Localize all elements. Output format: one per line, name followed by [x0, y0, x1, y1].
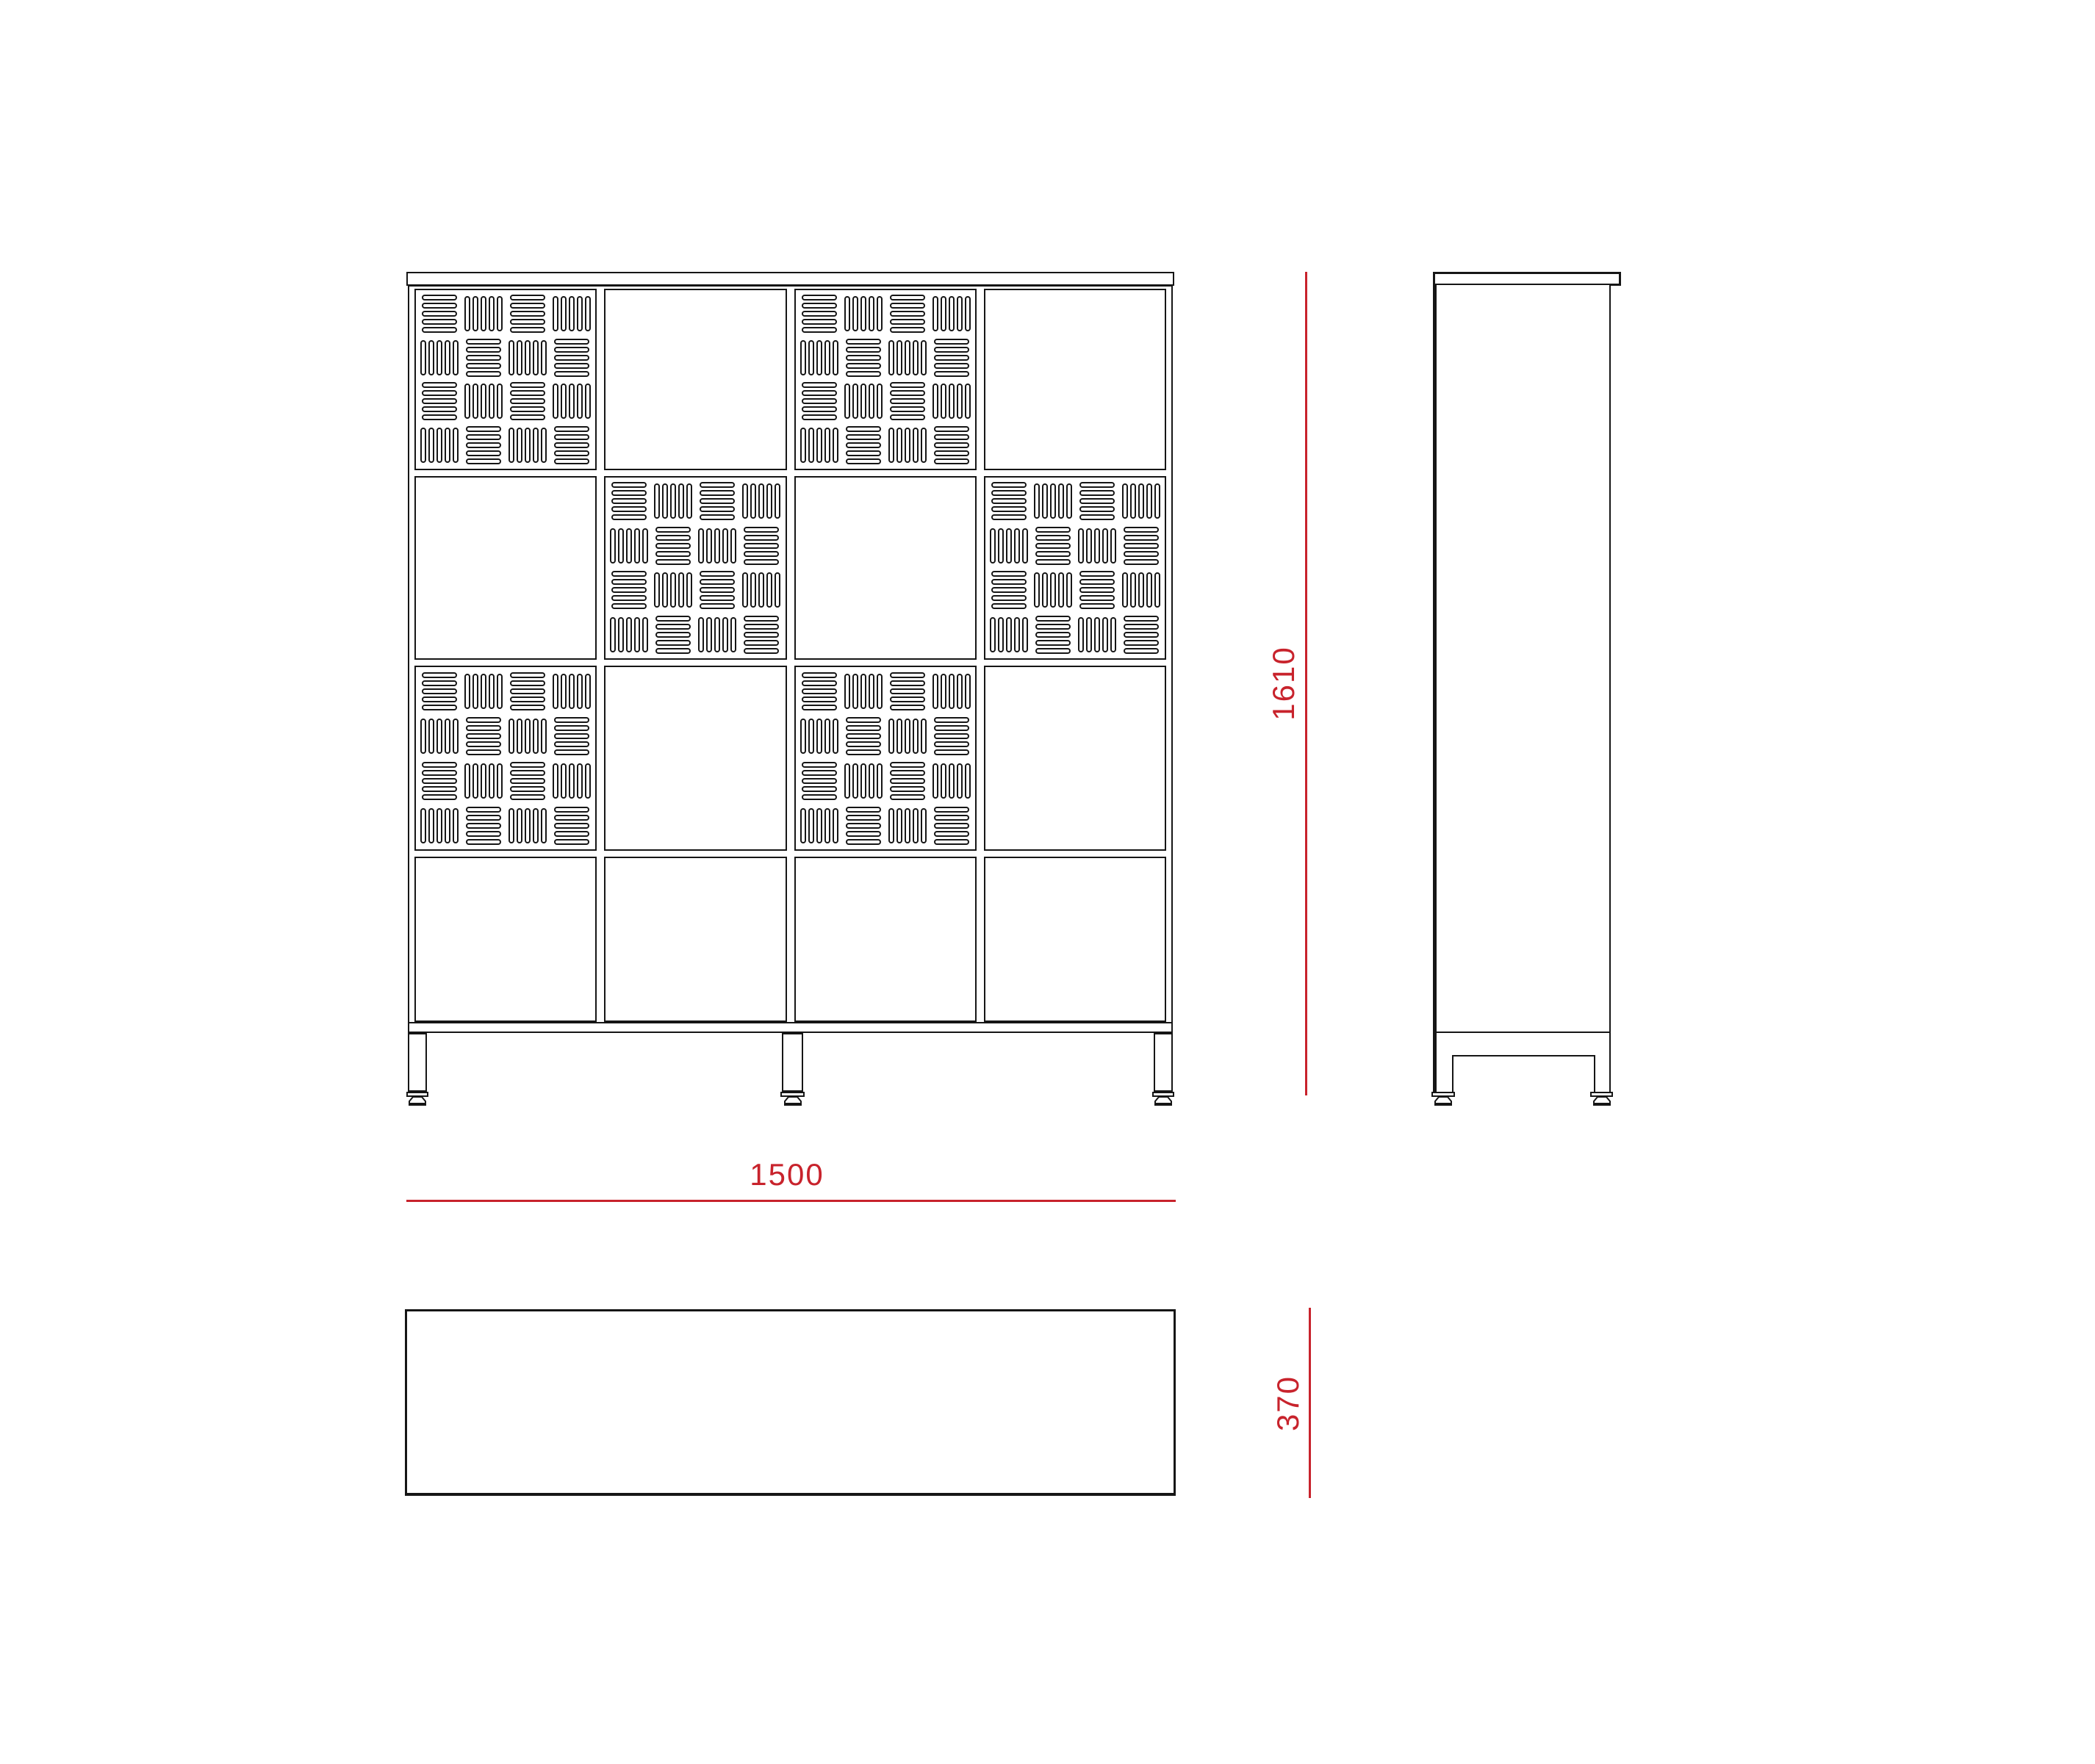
slat-group-horizontal — [417, 669, 461, 713]
slat-group-vertical — [930, 758, 974, 803]
slat — [802, 770, 837, 776]
front-door-r1c4-plain — [984, 289, 1166, 470]
slat — [1138, 572, 1144, 608]
slat — [744, 535, 779, 541]
slat — [655, 559, 691, 565]
slat — [1034, 572, 1040, 608]
slat — [744, 551, 779, 557]
slat — [846, 839, 881, 845]
slat-group-vertical — [841, 292, 885, 336]
slat — [800, 808, 806, 843]
slat-group-vertical — [841, 380, 885, 424]
slat — [990, 528, 996, 564]
slat — [860, 674, 866, 709]
slat — [934, 363, 969, 369]
slat — [802, 311, 837, 317]
slat — [890, 390, 925, 396]
slat-group-horizontal — [1075, 479, 1119, 524]
slat — [700, 490, 735, 496]
slat — [991, 506, 1027, 512]
slat-group-vertical — [885, 803, 930, 848]
slat — [525, 428, 531, 463]
slat — [577, 763, 583, 799]
slat — [662, 572, 668, 608]
slat — [905, 340, 910, 375]
slat — [744, 648, 779, 654]
slat — [422, 705, 457, 710]
side-apron — [1433, 1033, 1611, 1055]
slat — [428, 340, 434, 375]
slat — [888, 808, 894, 843]
slat — [422, 295, 457, 300]
slat-group-vertical — [550, 758, 594, 803]
slat — [510, 390, 545, 396]
slat — [934, 741, 969, 747]
slat — [890, 786, 925, 792]
slat — [957, 296, 963, 331]
slat — [802, 390, 837, 396]
slat-group-horizontal — [461, 423, 506, 467]
slat — [1124, 543, 1159, 549]
slat — [1154, 483, 1160, 519]
slat-group-vertical — [930, 380, 974, 424]
slat — [517, 808, 522, 843]
slat — [921, 719, 927, 754]
slat — [1079, 506, 1115, 512]
slat — [1086, 617, 1092, 652]
dimension-label-width: 1500 — [677, 1158, 897, 1192]
slat-group-vertical — [607, 613, 651, 658]
slat — [517, 719, 522, 754]
slat — [422, 762, 457, 768]
slat — [611, 579, 647, 585]
slat-group-horizontal — [797, 669, 841, 713]
adjustable-foot-icon — [1432, 1096, 1454, 1106]
slat — [890, 295, 925, 300]
slat — [509, 340, 514, 375]
slat — [554, 741, 589, 747]
slat — [1130, 483, 1136, 519]
slat — [833, 719, 838, 754]
slat — [700, 506, 735, 512]
slat — [686, 483, 692, 519]
slat — [464, 763, 470, 799]
slat — [554, 717, 589, 723]
slat — [618, 617, 624, 652]
side-leg-back — [1594, 1055, 1611, 1092]
slat — [1078, 617, 1084, 652]
slat — [802, 303, 837, 309]
slat — [890, 398, 925, 404]
slat — [554, 347, 589, 353]
slat — [611, 571, 647, 577]
slat — [888, 719, 894, 754]
side-top-panel — [1433, 272, 1621, 286]
slat-group-horizontal — [1031, 613, 1075, 658]
slat — [913, 428, 919, 463]
slat — [453, 340, 459, 375]
slat — [775, 483, 780, 519]
slat — [489, 296, 495, 331]
slat-group-horizontal — [930, 423, 974, 467]
slat — [611, 587, 647, 593]
slat — [934, 839, 969, 845]
slat — [824, 719, 830, 754]
slat — [846, 450, 881, 456]
slat — [569, 384, 575, 419]
slat-group-horizontal — [885, 669, 930, 713]
slat — [678, 483, 684, 519]
slat — [554, 426, 589, 432]
slat — [517, 428, 522, 463]
slat — [420, 808, 426, 843]
slat-group-vertical — [550, 292, 594, 336]
slat — [655, 624, 691, 630]
slat — [1110, 528, 1116, 564]
slat — [554, 749, 589, 755]
slat — [846, 355, 881, 361]
slat — [877, 296, 883, 331]
slat — [464, 384, 470, 419]
slat — [1079, 579, 1115, 585]
slat-group-vertical — [506, 423, 550, 467]
slat — [510, 696, 545, 702]
slat — [846, 807, 881, 813]
slat — [890, 680, 925, 686]
slat — [802, 319, 837, 325]
slat — [860, 296, 866, 331]
slat — [510, 406, 545, 412]
front-door-r4c4-plain — [984, 857, 1166, 1022]
slat — [662, 483, 668, 519]
slat — [422, 414, 457, 420]
slat — [934, 831, 969, 837]
slat — [869, 296, 874, 331]
slat-group-vertical — [739, 568, 783, 613]
slat — [422, 319, 457, 325]
slat — [510, 786, 545, 792]
slat — [422, 382, 457, 388]
slat — [802, 696, 837, 702]
slat — [670, 483, 676, 519]
slat-group-horizontal — [506, 758, 550, 803]
slat — [422, 303, 457, 309]
slat — [896, 340, 902, 375]
slat — [913, 808, 919, 843]
slat — [698, 617, 704, 652]
slat — [766, 572, 772, 608]
slat — [833, 340, 838, 375]
slat — [800, 428, 806, 463]
slat — [510, 762, 545, 768]
slat — [934, 725, 969, 731]
slat — [890, 770, 925, 776]
slat — [846, 371, 881, 377]
slat — [869, 674, 874, 709]
slat — [642, 617, 648, 652]
slat — [744, 616, 779, 622]
adjustable-foot-icon — [782, 1096, 804, 1106]
slat — [1035, 616, 1071, 622]
slat — [626, 528, 632, 564]
slat — [420, 428, 426, 463]
slat — [1006, 528, 1012, 564]
slat-group-horizontal — [841, 423, 885, 467]
slat — [466, 733, 501, 739]
slat — [1034, 483, 1040, 519]
slat-group-horizontal — [797, 292, 841, 336]
slat — [436, 340, 442, 375]
slat — [533, 808, 539, 843]
slat — [422, 688, 457, 694]
front-door-r1c3-perforated — [794, 289, 977, 470]
slat — [700, 587, 735, 593]
slat — [816, 808, 822, 843]
slat — [802, 778, 837, 784]
slat — [802, 705, 837, 710]
slat — [913, 719, 919, 754]
slat — [453, 808, 459, 843]
slat — [634, 528, 640, 564]
slat-group-vertical — [695, 524, 739, 569]
front-door-r2c2-perforated — [604, 476, 786, 660]
slat-group-vertical — [461, 758, 506, 803]
slat — [844, 384, 850, 419]
slat — [742, 572, 748, 608]
slat-group-horizontal — [841, 803, 885, 848]
slat — [611, 482, 647, 488]
front-view — [406, 272, 1174, 1105]
slat — [466, 371, 501, 377]
slat-group-horizontal — [797, 380, 841, 424]
slat — [921, 340, 927, 375]
slat — [700, 498, 735, 504]
slat-group-horizontal — [417, 758, 461, 803]
slat — [802, 327, 837, 333]
slat — [934, 426, 969, 432]
slat — [445, 340, 450, 375]
slat — [846, 347, 881, 353]
slat — [1110, 617, 1116, 652]
slat-group-vertical — [1119, 568, 1163, 613]
slat — [816, 428, 822, 463]
slat — [934, 355, 969, 361]
slat-group-vertical — [739, 479, 783, 524]
slat — [766, 483, 772, 519]
slat-group-horizontal — [651, 524, 695, 569]
front-door-r2c3-plain — [794, 476, 977, 660]
slat — [1079, 482, 1115, 488]
slat — [1124, 616, 1159, 622]
slat — [585, 384, 591, 419]
slat — [877, 763, 883, 799]
slat-group-horizontal — [461, 803, 506, 848]
slat — [890, 319, 925, 325]
slat — [541, 340, 547, 375]
slat — [510, 680, 545, 686]
slat — [517, 340, 522, 375]
slat — [422, 794, 457, 800]
slat — [1035, 559, 1071, 565]
slat — [844, 296, 850, 331]
slat — [1138, 483, 1144, 519]
slat — [481, 384, 486, 419]
slat — [1130, 572, 1136, 608]
slat — [472, 763, 478, 799]
slat — [991, 587, 1027, 593]
slat — [466, 815, 501, 821]
slat — [1154, 572, 1160, 608]
slat — [846, 741, 881, 747]
slat — [466, 807, 501, 813]
slat — [744, 640, 779, 646]
slat-group-horizontal — [930, 336, 974, 380]
slat-group-vertical — [1119, 479, 1163, 524]
slat — [1035, 632, 1071, 638]
slat — [957, 674, 963, 709]
slat-group-vertical — [930, 292, 974, 336]
slat — [846, 426, 881, 432]
slat-group-vertical — [417, 803, 461, 848]
slat — [860, 384, 866, 419]
slat — [934, 815, 969, 821]
slat-group-horizontal — [797, 758, 841, 803]
slat — [824, 340, 830, 375]
slat — [655, 648, 691, 654]
slat — [1079, 490, 1115, 496]
slat — [1094, 617, 1100, 652]
slat — [533, 340, 539, 375]
slat — [844, 763, 850, 799]
slat — [509, 808, 514, 843]
slat — [800, 340, 806, 375]
slat — [846, 434, 881, 440]
slat — [833, 808, 838, 843]
slat — [890, 762, 925, 768]
slat — [655, 551, 691, 557]
slat — [525, 808, 531, 843]
slat — [941, 384, 946, 419]
slat — [802, 672, 837, 678]
slat-group-vertical — [797, 336, 841, 380]
adjustable-foot-icon — [406, 1096, 428, 1106]
slat-group-vertical — [1031, 479, 1075, 524]
slat — [466, 725, 501, 731]
slat — [802, 794, 837, 800]
slat — [1079, 603, 1115, 609]
slat — [758, 572, 764, 608]
slat — [934, 442, 969, 448]
slat-group-vertical — [797, 713, 841, 758]
slat — [554, 339, 589, 345]
slat — [808, 719, 814, 754]
slat — [750, 483, 756, 519]
front-door-r2c4-perforated — [984, 476, 1166, 660]
slat-group-vertical — [695, 613, 739, 658]
slat — [554, 442, 589, 448]
slat — [802, 382, 837, 388]
slat — [611, 490, 647, 496]
slat — [846, 339, 881, 345]
slat — [860, 763, 866, 799]
slat — [934, 717, 969, 723]
slat — [453, 719, 459, 754]
slat — [497, 674, 503, 709]
slat — [611, 595, 647, 601]
slat-group-horizontal — [607, 568, 651, 613]
slat — [700, 579, 735, 585]
slat — [1146, 483, 1152, 519]
slat — [1124, 535, 1159, 541]
slat — [846, 749, 881, 755]
slat — [1058, 572, 1064, 608]
slat — [890, 382, 925, 388]
slat — [890, 303, 925, 309]
slat — [775, 572, 780, 608]
front-door-r4c2-plain — [604, 857, 786, 1022]
slat-group-vertical — [607, 524, 651, 569]
slat — [890, 696, 925, 702]
slat — [700, 571, 735, 577]
slat-group-horizontal — [885, 292, 930, 336]
slat — [481, 674, 486, 709]
slat — [802, 414, 837, 420]
slat — [611, 498, 647, 504]
slat — [1124, 632, 1159, 638]
front-door-grid — [414, 289, 1166, 1022]
slat — [742, 483, 748, 519]
front-top-panel — [406, 272, 1174, 286]
slat — [833, 428, 838, 463]
dimension-line-depth — [1309, 1308, 1311, 1498]
slat — [1124, 648, 1159, 654]
slat — [466, 426, 501, 432]
slat — [541, 808, 547, 843]
slat — [472, 296, 478, 331]
slat — [800, 719, 806, 754]
slat — [1035, 551, 1071, 557]
slat — [1124, 551, 1159, 557]
slat — [670, 572, 676, 608]
slat-group-horizontal — [885, 758, 930, 803]
slat-group-vertical — [417, 336, 461, 380]
slat — [816, 719, 822, 754]
slat — [554, 733, 589, 739]
slat — [466, 442, 501, 448]
slat — [510, 672, 545, 678]
slat — [991, 571, 1027, 577]
slat — [991, 498, 1027, 504]
slat-group-horizontal — [461, 713, 506, 758]
slat-group-vertical — [506, 336, 550, 380]
slat — [890, 672, 925, 678]
adjustable-foot-icon — [1152, 1096, 1174, 1106]
slat — [846, 717, 881, 723]
slat-group-horizontal — [550, 423, 594, 467]
front-leg-center — [782, 1033, 803, 1092]
slat — [510, 303, 545, 309]
slat-group-horizontal — [841, 336, 885, 380]
slat — [466, 355, 501, 361]
adjustable-foot-icon — [1591, 1096, 1613, 1106]
slat-group-horizontal — [550, 336, 594, 380]
slat — [466, 363, 501, 369]
slat-group-vertical — [1075, 524, 1119, 569]
slat-group-horizontal — [930, 803, 974, 848]
slat — [554, 371, 589, 377]
slat-group-vertical — [506, 713, 550, 758]
slat — [991, 595, 1027, 601]
